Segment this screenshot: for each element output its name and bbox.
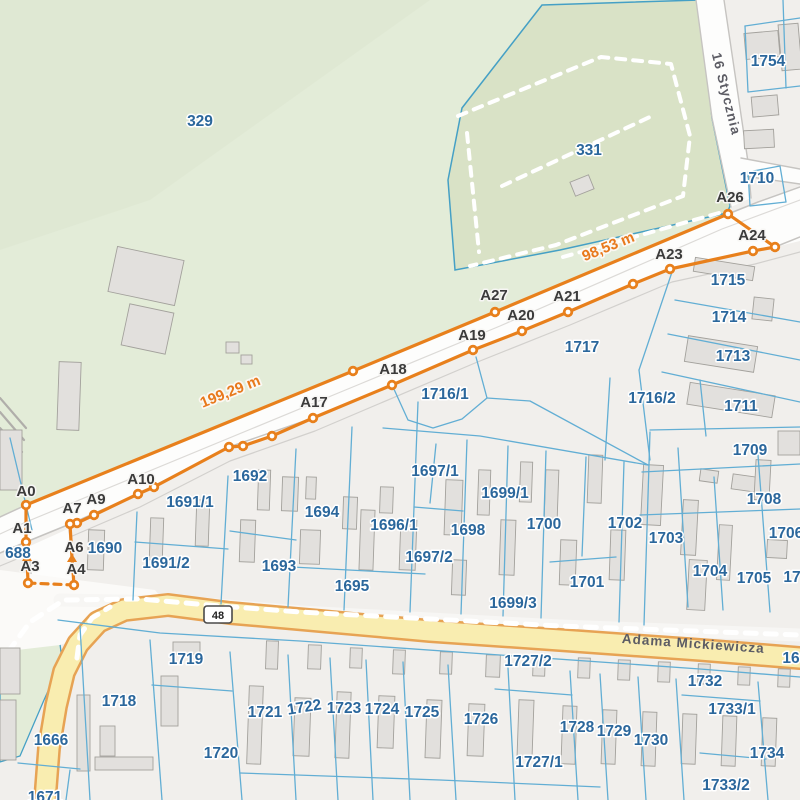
parcel-label-1719: 1719 bbox=[169, 651, 204, 668]
building bbox=[247, 686, 264, 764]
building bbox=[451, 560, 466, 595]
building bbox=[778, 431, 800, 455]
measure-vertex-A7[interactable] bbox=[65, 519, 75, 529]
building bbox=[658, 662, 671, 682]
waypoint-label-A24: A24 bbox=[738, 227, 766, 244]
parcel-label-1691-1: 1691/1 bbox=[166, 494, 214, 511]
waypoint-label-A19: A19 bbox=[458, 327, 486, 344]
waypoint-label-A20: A20 bbox=[507, 307, 535, 324]
parcel-label-1732: 1732 bbox=[688, 673, 722, 690]
parcel-label-1697-1: 1697/1 bbox=[411, 463, 459, 480]
measure-vertex-A0[interactable] bbox=[21, 500, 31, 510]
parcel-label-1720: 1720 bbox=[204, 745, 238, 762]
area-label-331: 331 bbox=[576, 142, 602, 159]
map-viewport[interactable]: A0A1A3A4A7A9A10A17A18A19A20A21A23A24A26A… bbox=[0, 0, 800, 800]
waypoint-label-A7: A7 bbox=[62, 500, 81, 517]
building bbox=[299, 530, 320, 565]
parcel-label-1713: 1713 bbox=[716, 348, 751, 365]
building bbox=[721, 716, 737, 766]
building bbox=[699, 469, 718, 483]
measure-vertex-A18[interactable] bbox=[387, 380, 397, 390]
building bbox=[342, 497, 357, 529]
building bbox=[544, 470, 559, 520]
waypoint-label-A9: A9 bbox=[86, 491, 105, 508]
parcel-label-1734: 1734 bbox=[750, 745, 785, 762]
parcel-label-1698: 1698 bbox=[451, 522, 486, 539]
waypoint-label-A23: A23 bbox=[655, 246, 683, 263]
parcel-label-1671: 1671 bbox=[28, 789, 63, 800]
parcel-label-1691-2: 1691/2 bbox=[142, 555, 189, 572]
measure-vertex-A17[interactable] bbox=[308, 413, 318, 423]
parcel-label-1709: 1709 bbox=[733, 442, 768, 459]
measure-vertex[interactable] bbox=[770, 242, 780, 252]
parcel-label-1729: 1729 bbox=[597, 723, 632, 740]
measure-vertex-A20[interactable] bbox=[517, 326, 527, 336]
building bbox=[100, 726, 115, 756]
parcel-label-1727-2: 1727/2 bbox=[504, 653, 551, 670]
parcel-label-1717: 1717 bbox=[565, 339, 599, 356]
parcel-label-1695: 1695 bbox=[335, 578, 370, 595]
parcel-label-1666: 1666 bbox=[34, 732, 69, 749]
building bbox=[95, 757, 153, 770]
waypoint-label-A27: A27 bbox=[480, 287, 508, 304]
building bbox=[380, 487, 394, 513]
waypoint-label-A4: A4 bbox=[66, 561, 86, 578]
parcel-label-clipped-17: 17 bbox=[783, 569, 800, 586]
parcel-label-1718: 1718 bbox=[102, 693, 137, 710]
waypoint-label-A6: A6 bbox=[64, 539, 83, 556]
building bbox=[306, 477, 317, 499]
parcel-label-1733-1: 1733/1 bbox=[708, 701, 756, 718]
measure-vertex-A21[interactable] bbox=[563, 307, 573, 317]
building bbox=[350, 648, 363, 668]
parcel-label-1690: 1690 bbox=[88, 540, 122, 557]
building bbox=[57, 362, 81, 431]
parcel-label-clipped-16: 16 bbox=[782, 650, 800, 667]
measure-vertex-A19[interactable] bbox=[468, 345, 478, 355]
building bbox=[640, 465, 663, 526]
parcel-label-1726: 1726 bbox=[464, 711, 499, 728]
parcel-label-1693: 1693 bbox=[262, 558, 297, 575]
parcel-label-1715: 1715 bbox=[711, 272, 746, 289]
parcel-label-1706: 1706 bbox=[769, 525, 800, 542]
parcel-label-1700: 1700 bbox=[527, 516, 561, 533]
building bbox=[587, 455, 603, 503]
parcel-label-1724: 1724 bbox=[365, 701, 400, 718]
building bbox=[241, 355, 252, 364]
parcel-label-1723: 1723 bbox=[327, 700, 362, 717]
building bbox=[0, 700, 16, 760]
building bbox=[517, 700, 534, 758]
waypoint-label-A10: A10 bbox=[127, 471, 155, 488]
building bbox=[738, 667, 751, 685]
building bbox=[778, 669, 791, 687]
parcel-label-1727-1: 1727/1 bbox=[515, 754, 563, 771]
building bbox=[499, 520, 516, 575]
measure-vertex[interactable] bbox=[348, 366, 358, 376]
parcel-label-1708: 1708 bbox=[747, 491, 782, 508]
measure-vertex-A27[interactable] bbox=[490, 307, 500, 317]
waypoint-label-A1: A1 bbox=[12, 520, 31, 537]
building bbox=[0, 430, 22, 490]
parcel-label-1721: 1721 bbox=[248, 704, 283, 721]
building bbox=[751, 95, 779, 117]
route-badge-text: 48 bbox=[212, 610, 224, 622]
parcel-label-1754: 1754 bbox=[751, 53, 786, 70]
map-canvas[interactable]: A0A1A3A4A7A9A10A17A18A19A20A21A23A24A26A… bbox=[0, 0, 800, 800]
parcel-label-1725: 1725 bbox=[405, 704, 440, 721]
parcel-label-1699-1: 1699/1 bbox=[481, 485, 529, 502]
measure-vertex[interactable] bbox=[224, 442, 234, 452]
measure-vertex-A24[interactable] bbox=[748, 246, 758, 256]
waypoint-label-A17: A17 bbox=[300, 394, 328, 411]
measure-vertex-A23[interactable] bbox=[665, 264, 675, 274]
measure-vertex[interactable] bbox=[267, 431, 277, 441]
parcel-label-1702: 1702 bbox=[608, 515, 642, 532]
building bbox=[239, 520, 255, 562]
parcel-label-1701: 1701 bbox=[570, 574, 605, 591]
measure-vertex[interactable] bbox=[238, 441, 248, 451]
parcel-label-1711: 1711 bbox=[724, 398, 758, 415]
parcel-label-1733-2: 1733/2 bbox=[702, 777, 749, 794]
parcel-label-1704: 1704 bbox=[693, 563, 728, 580]
parcel-label-1692: 1692 bbox=[233, 468, 267, 485]
building bbox=[161, 676, 178, 726]
parcel-label-clipped-688: 688 bbox=[5, 545, 31, 562]
parcel-label-1728: 1728 bbox=[560, 719, 595, 736]
parcel-label-1694: 1694 bbox=[305, 504, 340, 521]
building bbox=[266, 641, 279, 669]
building bbox=[308, 645, 322, 669]
building bbox=[0, 648, 20, 694]
parcel-label-1730: 1730 bbox=[634, 732, 668, 749]
building bbox=[767, 539, 788, 558]
parcel-label-1699-3: 1699/3 bbox=[489, 595, 537, 612]
measure-vertex[interactable] bbox=[628, 279, 638, 289]
measure-vertex-A3[interactable] bbox=[23, 578, 33, 588]
measure-vertex-A26[interactable] bbox=[723, 209, 733, 219]
parcel-label-1714: 1714 bbox=[712, 309, 747, 326]
measure-vertex-A9[interactable] bbox=[89, 510, 99, 520]
building bbox=[744, 129, 775, 149]
area-label-329: 329 bbox=[187, 113, 213, 130]
building bbox=[681, 714, 697, 764]
building bbox=[226, 342, 239, 353]
building bbox=[440, 652, 453, 674]
waypoint-label-A18: A18 bbox=[379, 361, 407, 378]
parcel-label-1716-1: 1716/1 bbox=[421, 386, 469, 403]
parcel-label-1703: 1703 bbox=[649, 530, 684, 547]
waypoint-label-A21: A21 bbox=[553, 288, 581, 305]
parcel-label-1705: 1705 bbox=[737, 570, 772, 587]
parcel-label-1716-2: 1716/2 bbox=[628, 390, 675, 407]
building bbox=[486, 655, 501, 677]
measure-vertex-A4[interactable] bbox=[69, 580, 79, 590]
building bbox=[121, 304, 174, 354]
building bbox=[609, 530, 626, 580]
waypoint-label-A0: A0 bbox=[16, 483, 35, 500]
parcel-label-1710: 1710 bbox=[740, 170, 774, 187]
building bbox=[149, 518, 163, 560]
waypoint-label-A26: A26 bbox=[716, 189, 744, 206]
parcel-label-1696-1: 1696/1 bbox=[370, 517, 418, 534]
measure-vertex-A10[interactable] bbox=[133, 489, 143, 499]
building bbox=[281, 477, 298, 512]
parcel-label-1697-2: 1697/2 bbox=[405, 549, 452, 566]
